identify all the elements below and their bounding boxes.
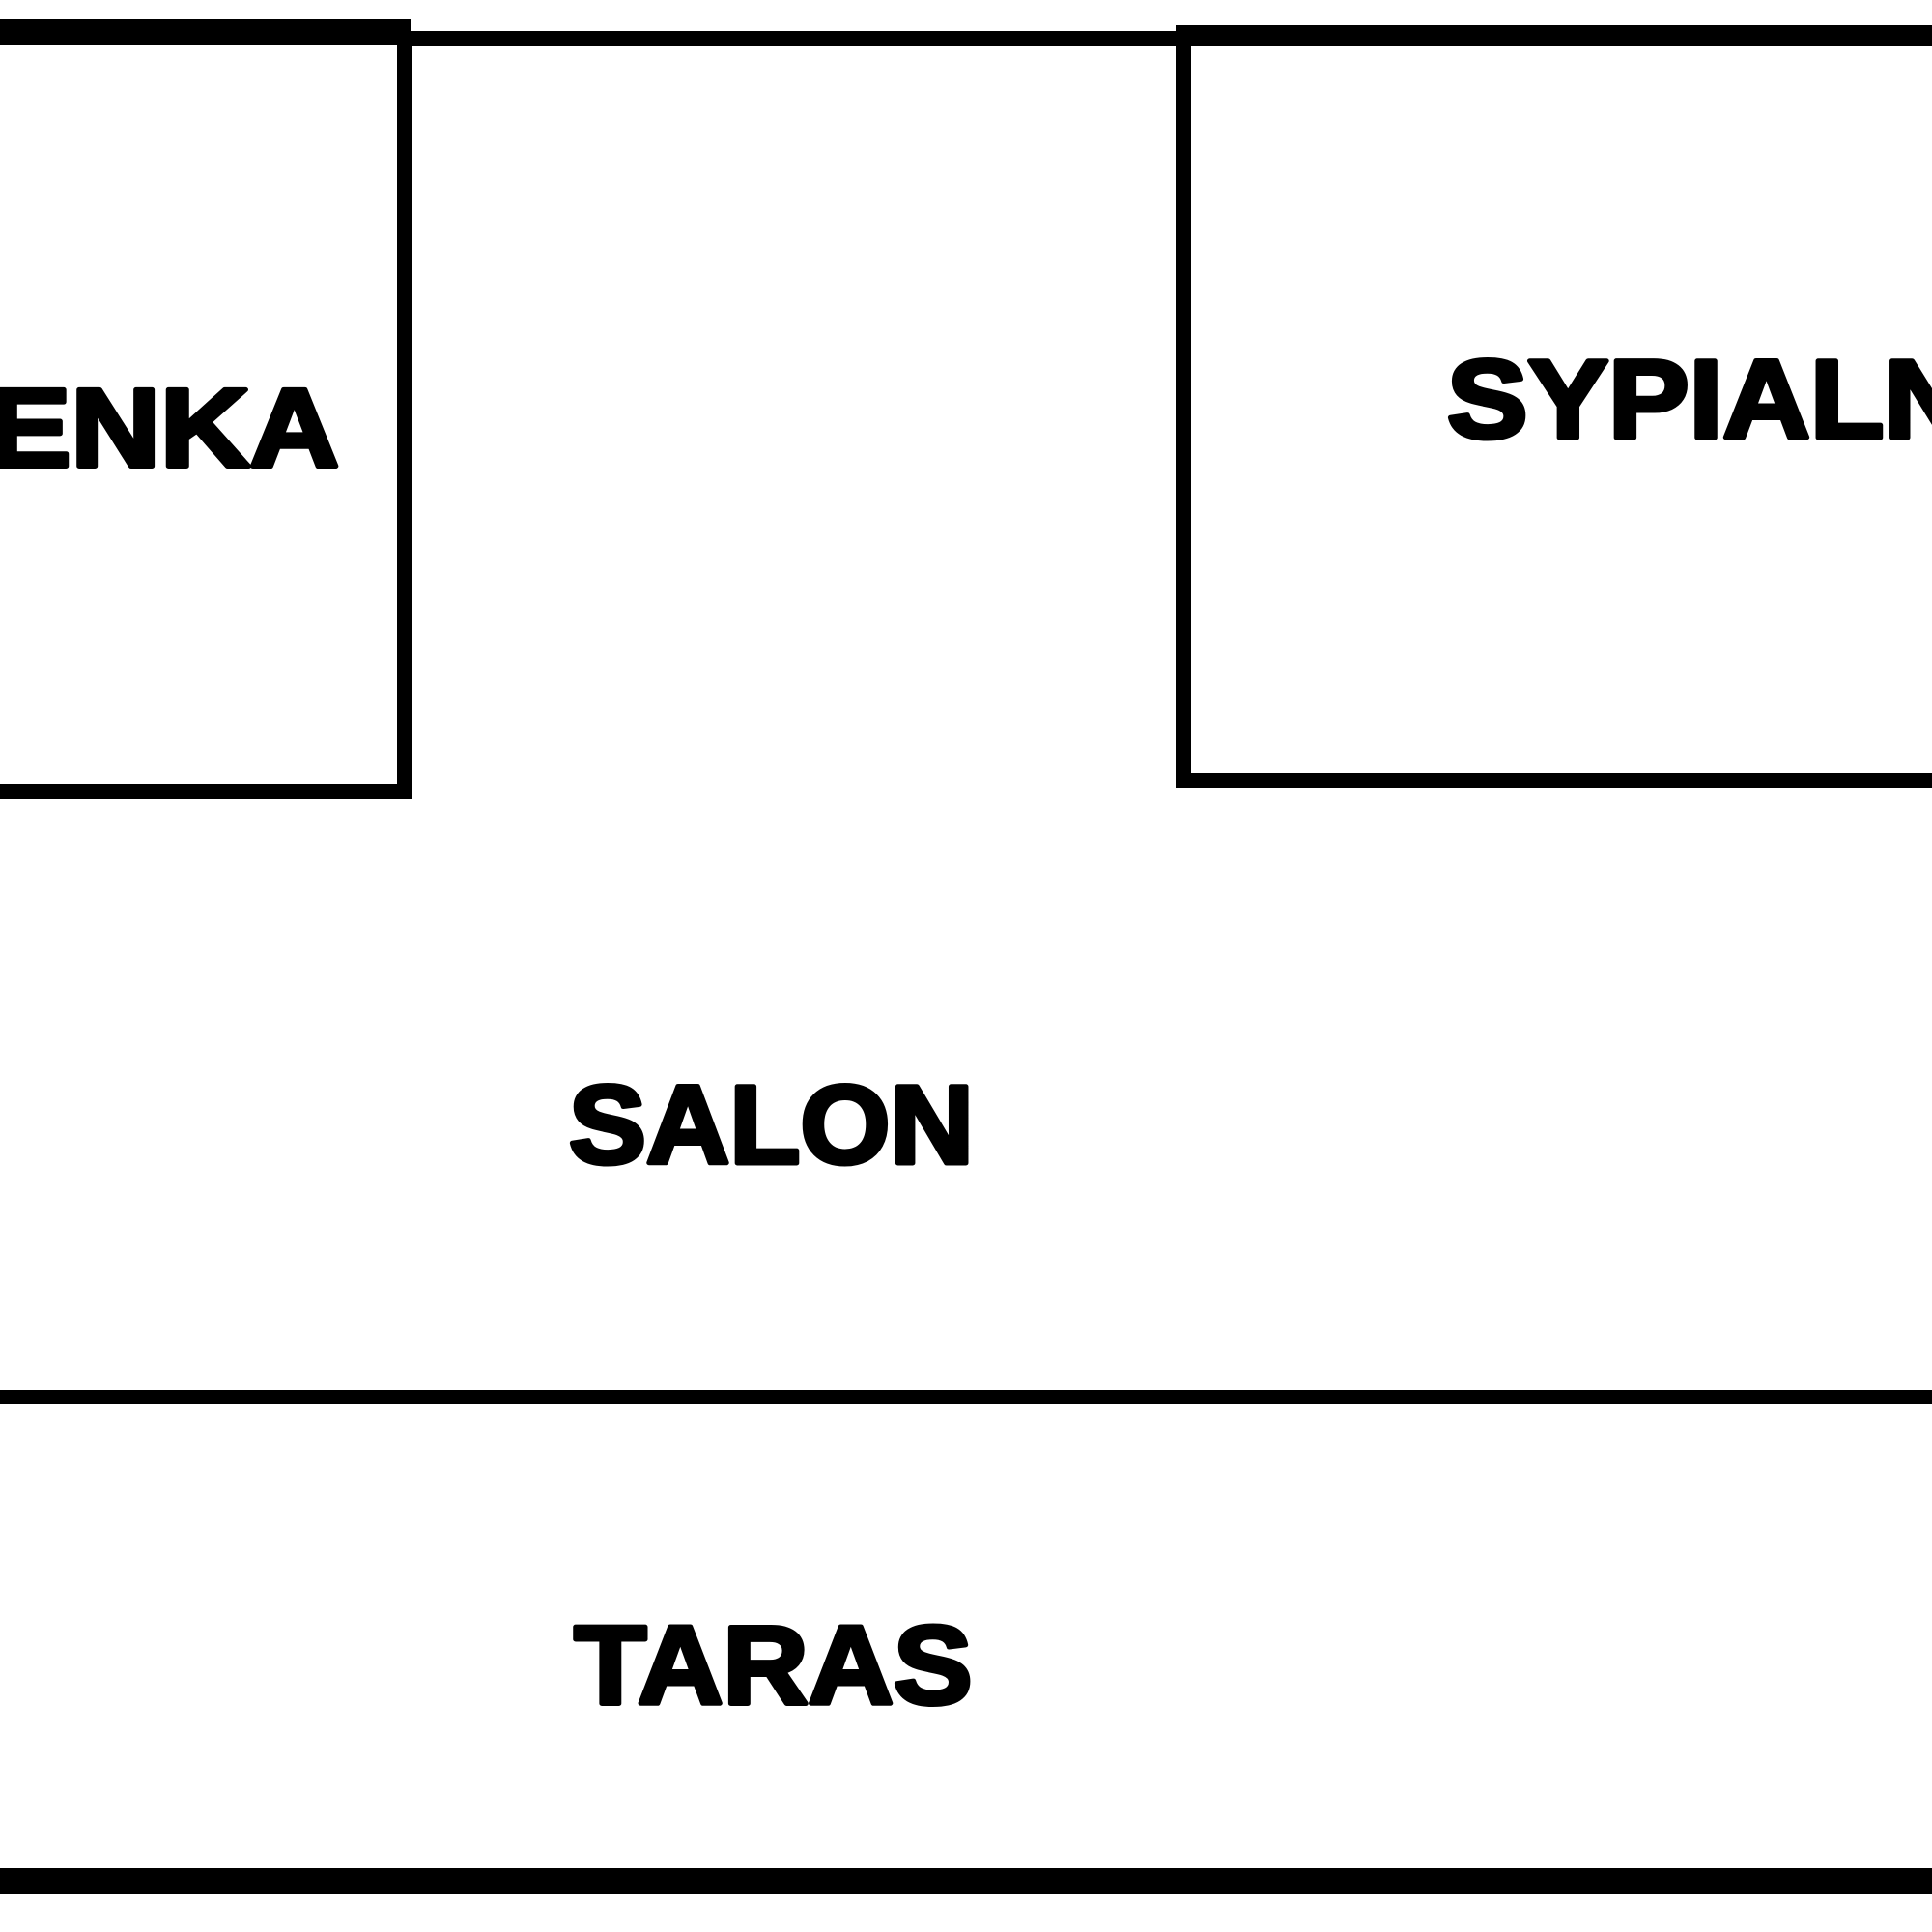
svg-text:SALON: SALON	[569, 1064, 974, 1187]
svg-text:SYPIALNIA: SYPIALNIA	[1447, 338, 1932, 462]
svg-text:TARAS: TARAS	[575, 1605, 973, 1728]
svg-text:ENKA: ENKA	[0, 367, 339, 491]
